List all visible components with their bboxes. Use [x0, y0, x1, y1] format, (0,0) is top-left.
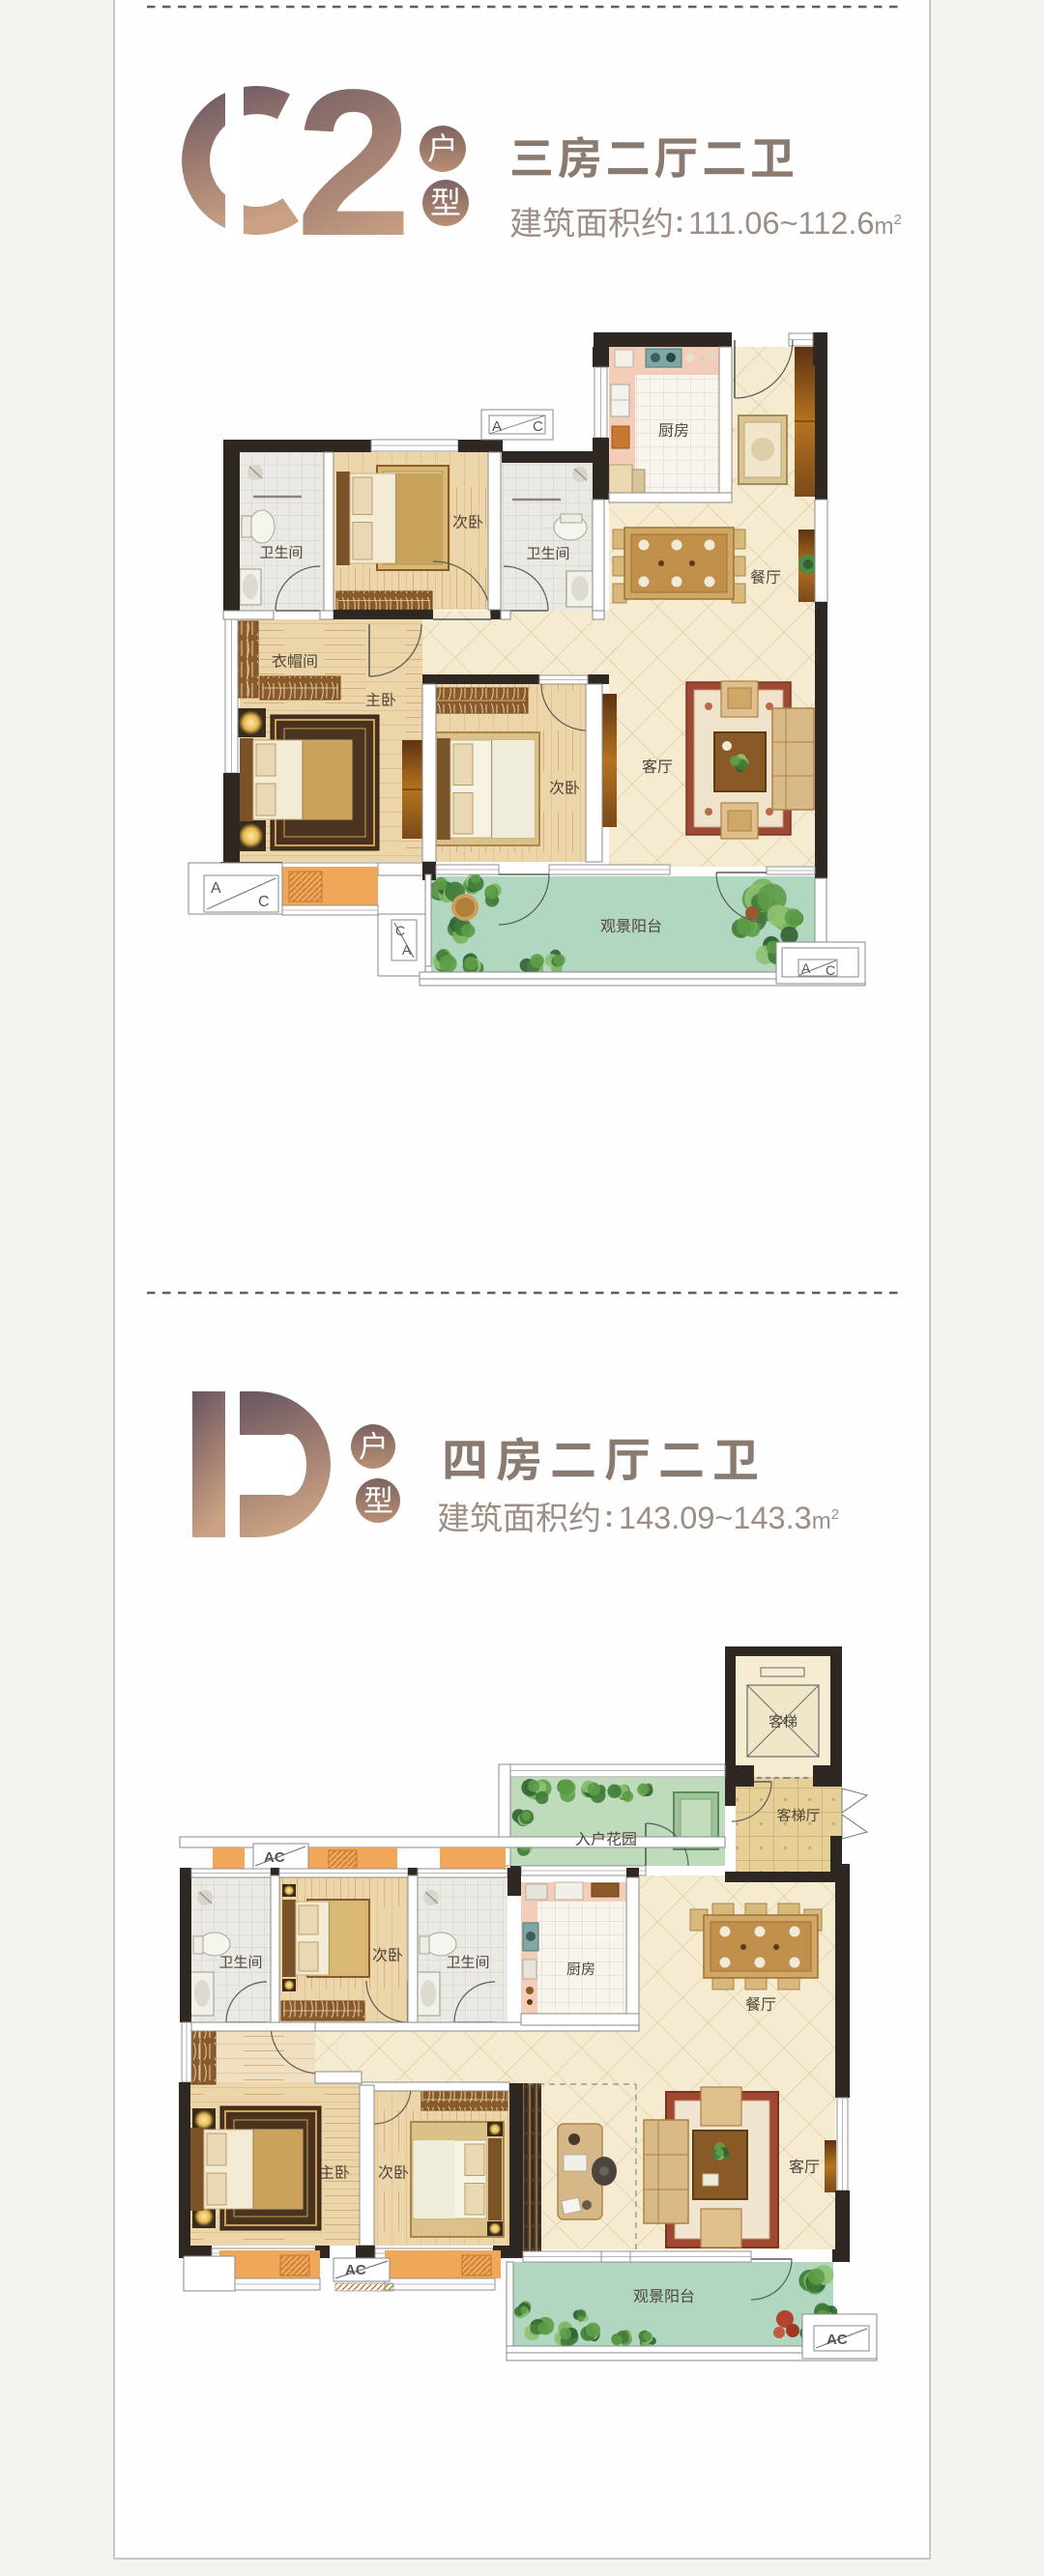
svg-text:AC: AC [264, 1849, 285, 1866]
svg-text:2: 2 [296, 45, 412, 279]
svg-text:A: A [801, 960, 811, 976]
svg-text:111.06~112.6m2: 111.06~112.6m2 [688, 206, 902, 241]
svg-text:AC: AC [345, 2262, 366, 2278]
svg-text:C: C [533, 418, 543, 435]
svg-text:A: A [211, 880, 221, 897]
svg-text:C: C [826, 962, 835, 978]
svg-text:A: A [492, 418, 502, 435]
svg-text:AC: AC [826, 2332, 848, 2348]
svg-text:C: C [258, 894, 270, 910]
svg-text:A: A [402, 942, 412, 958]
svg-text:C: C [395, 923, 405, 938]
svg-text:143.09~143.3m2: 143.09~143.3m2 [619, 1501, 839, 1535]
